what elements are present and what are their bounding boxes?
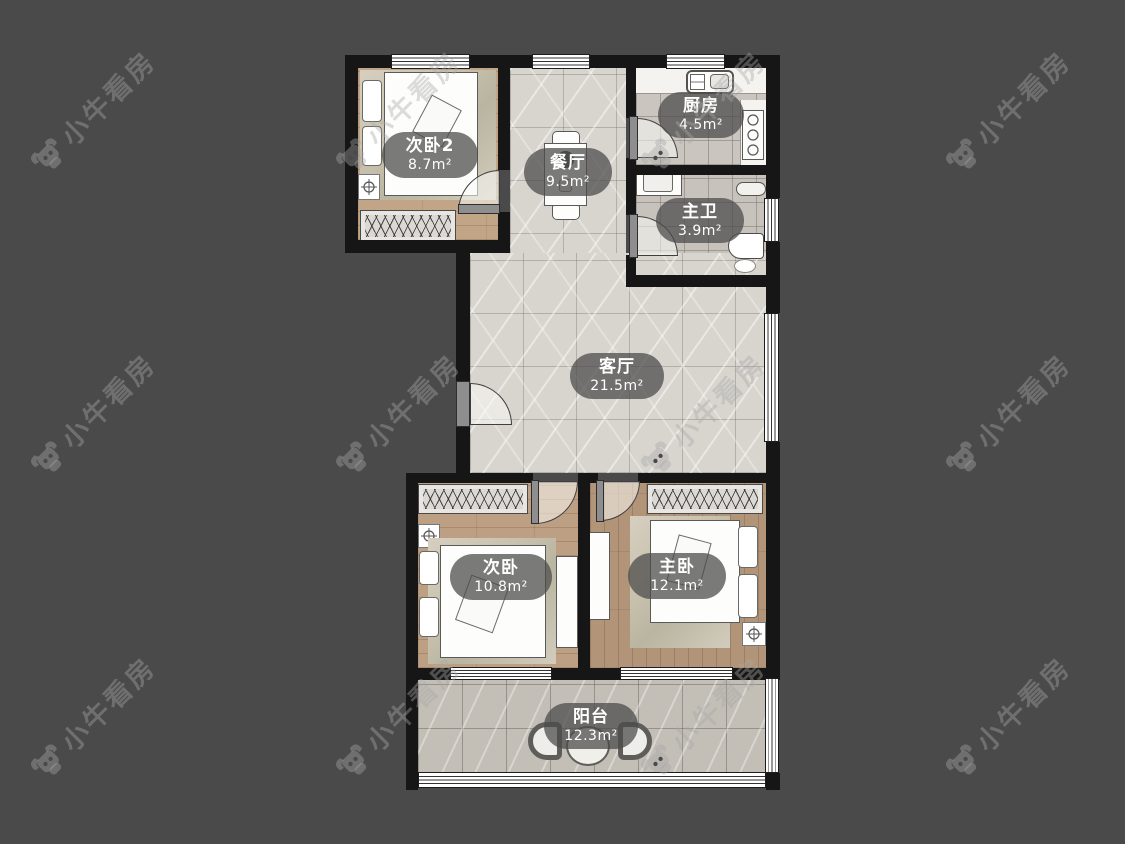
window bbox=[391, 54, 470, 69]
window bbox=[764, 313, 779, 442]
window bbox=[418, 772, 766, 788]
dining-chair bbox=[552, 205, 580, 220]
brand-watermark: 小牛看房 bbox=[22, 41, 163, 182]
wall bbox=[626, 55, 636, 118]
master-tv-cabinet bbox=[588, 532, 610, 620]
kitchen-rack bbox=[690, 74, 705, 90]
ceiling-light-icon bbox=[742, 622, 766, 646]
wall bbox=[766, 773, 780, 790]
master-pillow bbox=[738, 574, 758, 618]
room-area: 10.8m² bbox=[450, 580, 552, 594]
watermark-text: 小牛看房 bbox=[51, 41, 163, 153]
wall bbox=[766, 287, 780, 313]
wall bbox=[345, 240, 510, 253]
room-name: 餐厅 bbox=[524, 155, 612, 172]
watermark-text: 小牛看房 bbox=[966, 647, 1078, 759]
bull-logo-icon bbox=[328, 433, 379, 484]
brand-watermark: 小牛看房 bbox=[937, 41, 1078, 182]
room-label-master-bedroom: 主卧 12.1m² bbox=[628, 553, 726, 599]
entry-door bbox=[456, 381, 470, 427]
wall bbox=[578, 483, 590, 668]
room-name: 阳台 bbox=[544, 709, 638, 726]
window bbox=[620, 667, 733, 680]
brand-watermark: 小牛看房 bbox=[22, 647, 163, 788]
watermark-text: 小牛看房 bbox=[51, 647, 163, 759]
wall bbox=[345, 55, 358, 253]
bathroom-basin bbox=[643, 173, 673, 192]
room-area: 12.3m² bbox=[544, 729, 638, 743]
room-name: 主卧 bbox=[628, 559, 726, 576]
ceiling-light-icon bbox=[358, 174, 380, 200]
wall bbox=[766, 473, 780, 678]
room-area: 8.7m² bbox=[382, 158, 478, 172]
bull-logo-icon bbox=[938, 433, 989, 484]
wall bbox=[406, 473, 418, 790]
window bbox=[666, 54, 725, 69]
window bbox=[450, 667, 552, 680]
bull-logo-icon bbox=[938, 130, 989, 181]
master-wardrobe bbox=[647, 484, 763, 514]
room-label-dining: 餐厅 9.5m² bbox=[524, 148, 612, 196]
bull-logo-icon bbox=[938, 736, 989, 787]
master-pillow bbox=[738, 526, 758, 568]
room-label-master-bath: 主卫 3.9m² bbox=[656, 198, 744, 243]
bull-logo-icon bbox=[23, 433, 74, 484]
room-label-balcony: 阳台 12.3m² bbox=[544, 703, 638, 749]
watermark-text: 小牛看房 bbox=[966, 41, 1078, 153]
bull-logo-icon bbox=[23, 130, 74, 181]
wall bbox=[456, 427, 470, 473]
room-label-kitchen: 厨房 4.5m² bbox=[658, 92, 744, 138]
kitchen-sink-bowl bbox=[710, 74, 729, 89]
wall bbox=[638, 473, 780, 483]
brand-watermark: 小牛看房 bbox=[937, 344, 1078, 485]
wall bbox=[498, 55, 510, 170]
wall bbox=[406, 473, 533, 483]
watermark-text: 小牛看房 bbox=[51, 344, 163, 456]
wall bbox=[406, 668, 450, 680]
bedroom2-pillow bbox=[362, 126, 382, 166]
wall bbox=[578, 473, 598, 483]
wall bbox=[552, 668, 620, 680]
window bbox=[532, 54, 590, 69]
bedroom-wardrobe bbox=[418, 484, 528, 514]
floorplan-canvas: 次卧2 8.7m² 餐厅 9.5m² 厨房 4.5m² 主卫 3.9m² 客厅 … bbox=[0, 0, 1125, 844]
wall bbox=[626, 175, 636, 215]
bedroom-pillow bbox=[419, 597, 439, 637]
room-name: 厨房 bbox=[658, 98, 744, 115]
bedroom2-wardrobe bbox=[360, 210, 456, 242]
room-name: 次卧2 bbox=[382, 138, 478, 155]
wall bbox=[456, 253, 470, 383]
bedroom-pillow bbox=[419, 551, 439, 585]
bedroom-cabinet bbox=[556, 556, 578, 648]
room-area: 21.5m² bbox=[570, 379, 664, 393]
bathroom-door bbox=[629, 214, 638, 258]
bathroom-shower bbox=[736, 182, 766, 196]
master-door bbox=[596, 480, 604, 522]
watermark-text: 小牛看房 bbox=[966, 344, 1078, 456]
wall bbox=[766, 175, 780, 198]
room-area: 9.5m² bbox=[524, 175, 612, 189]
room-area: 4.5m² bbox=[658, 118, 744, 132]
wall bbox=[766, 55, 780, 175]
brand-watermark: 小牛看房 bbox=[22, 344, 163, 485]
wall bbox=[626, 275, 780, 287]
bathroom-mat bbox=[734, 259, 756, 273]
room-area: 3.9m² bbox=[656, 224, 744, 238]
wall bbox=[498, 212, 510, 242]
kitchen-stove bbox=[742, 110, 764, 160]
bull-logo-icon bbox=[23, 736, 74, 787]
window bbox=[764, 198, 779, 242]
brand-watermark: 小牛看房 bbox=[937, 647, 1078, 788]
room-label-bedroom2: 次卧2 8.7m² bbox=[382, 132, 478, 178]
room-label-living: 客厅 21.5m² bbox=[570, 353, 664, 399]
room-area: 12.1m² bbox=[628, 579, 726, 593]
bedroom2-pillow bbox=[362, 80, 382, 122]
watermark-text: 小牛看房 bbox=[356, 344, 468, 456]
brand-watermark: 小牛看房 bbox=[327, 344, 468, 485]
room-name: 客厅 bbox=[570, 359, 664, 376]
kitchen-door bbox=[629, 116, 638, 160]
room-name: 次卧 bbox=[450, 560, 552, 577]
room-label-bedroom: 次卧 10.8m² bbox=[450, 554, 552, 600]
room-name: 主卫 bbox=[656, 204, 744, 221]
bull-logo-icon bbox=[328, 736, 379, 787]
window bbox=[765, 678, 779, 773]
wall bbox=[626, 165, 780, 175]
bedroom2-door bbox=[458, 204, 500, 214]
bedroom-door bbox=[531, 480, 539, 524]
